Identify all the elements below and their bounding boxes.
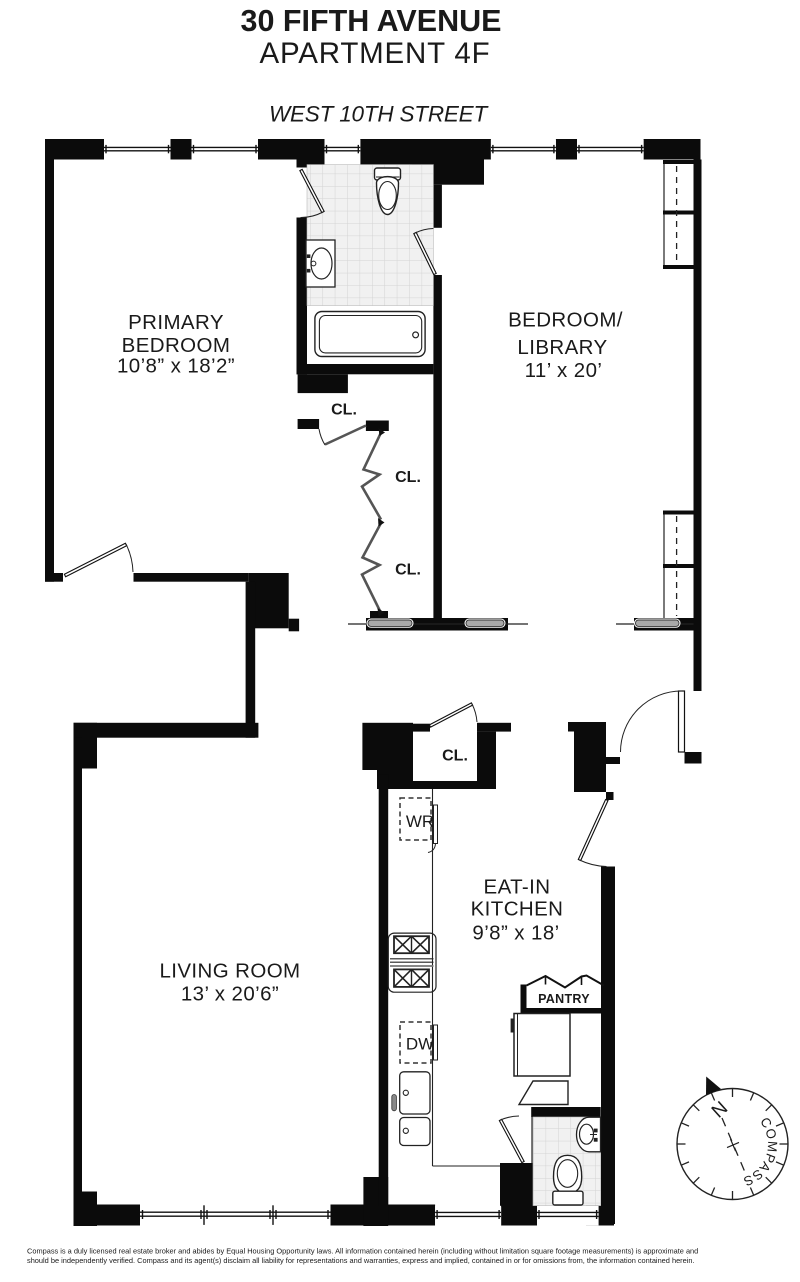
svg-text:WEST 10TH STREET: WEST 10TH STREET [269, 102, 490, 127]
svg-text:13’ x 20’6”: 13’ x 20’6” [181, 983, 279, 1006]
svg-text:KITCHEN: KITCHEN [471, 898, 564, 921]
svg-text:PANTRY: PANTRY [538, 992, 590, 1006]
svg-text:Compass is a duly licensed rea: Compass is a duly licensed real estate b… [27, 1247, 698, 1256]
svg-text:9’8” x 18’: 9’8” x 18’ [472, 922, 559, 945]
svg-text:APARTMENT 4F: APARTMENT 4F [260, 37, 491, 70]
svg-text:10’8” x 18’2”: 10’8” x 18’2” [117, 355, 235, 378]
svg-text:LIVING ROOM: LIVING ROOM [159, 960, 300, 983]
svg-text:BEDROOM/: BEDROOM/ [508, 309, 623, 332]
svg-text:LIBRARY: LIBRARY [517, 336, 607, 359]
svg-text:CL.: CL. [395, 469, 421, 486]
svg-text:CL.: CL. [442, 748, 468, 765]
svg-text:CL.: CL. [331, 402, 357, 419]
svg-text:30 FIFTH AVENUE: 30 FIFTH AVENUE [241, 4, 502, 38]
svg-text:CL.: CL. [395, 562, 421, 579]
svg-text:11’ x 20’: 11’ x 20’ [525, 359, 603, 382]
svg-text:PRIMARY: PRIMARY [128, 311, 224, 334]
svg-text:DW: DW [406, 1035, 434, 1054]
svg-text:EAT-IN: EAT-IN [484, 876, 551, 899]
svg-text:WR: WR [406, 812, 434, 831]
svg-text:should be independently verifi: should be independently verified. Compas… [27, 1256, 695, 1265]
